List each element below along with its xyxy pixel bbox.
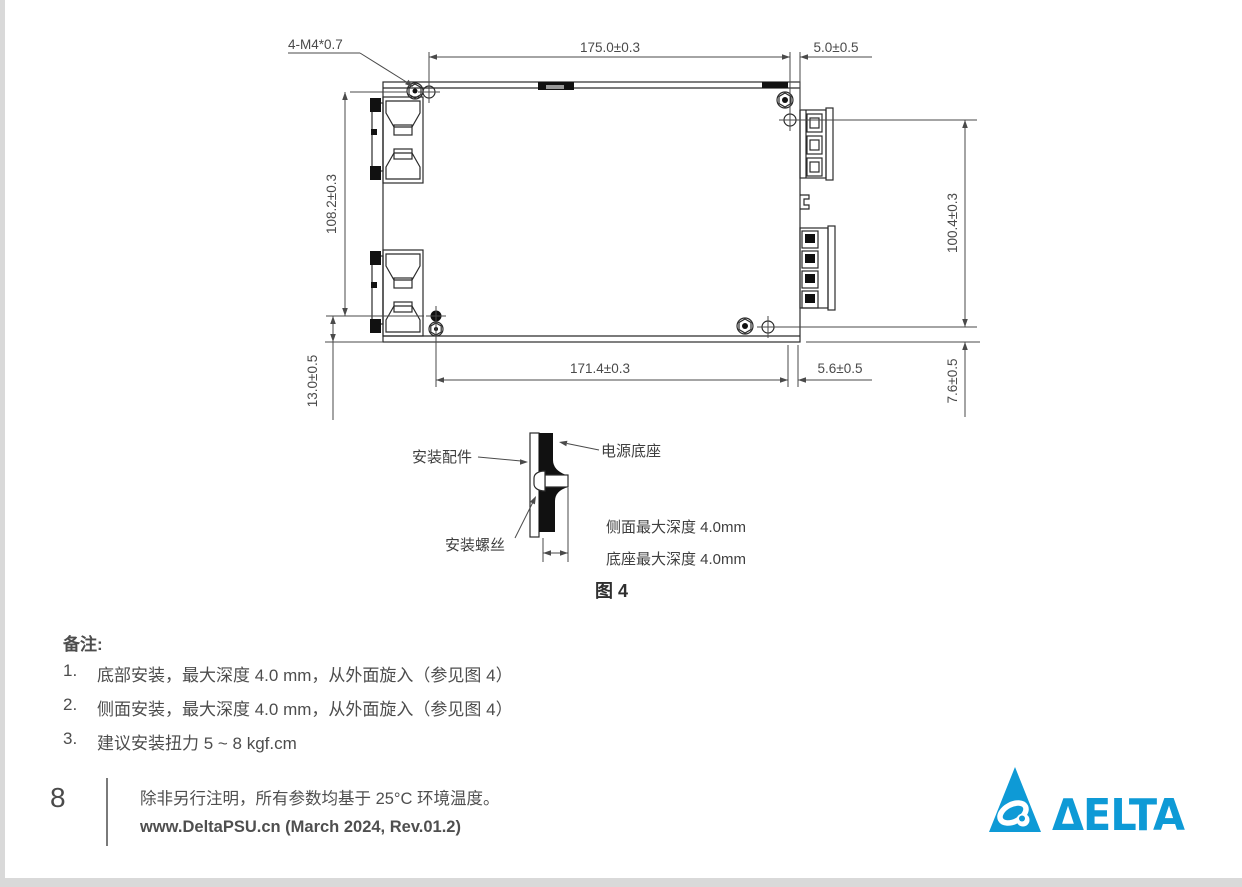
top-right-tab: [762, 82, 788, 88]
mounting-hole-icons: [418, 81, 801, 338]
note-text: 建议安装扭力 5 ~ 8 kgf.cm: [97, 729, 297, 754]
output-terminal-block: [800, 226, 835, 310]
note-item: 1. 底部安装，最大深度 4.0 mm，从外面旋入（参见图 4）: [63, 661, 513, 686]
left-bracket-bottom: [370, 250, 423, 336]
mounting-detail-figure: 安装配件 电源底座 安装螺丝 侧面最大深度 4.0mm 底座最大深度 4.0mm…: [395, 420, 775, 615]
dim-top-width: 175.0±0.3: [580, 40, 640, 55]
input-terminal-block: [800, 108, 833, 180]
psu-body-outline: [383, 82, 800, 342]
label-mounting-screw: 安装螺丝: [445, 537, 505, 554]
note-text: 侧面安装，最大深度 4.0 mm，从外面旋入（参见图 4）: [97, 695, 513, 720]
page-edge-bottom: [0, 878, 1242, 887]
delta-logo-text: ΔELTA: [1052, 790, 1185, 841]
dim-bottom-right-offset: 5.6±0.5: [818, 361, 863, 376]
dim-right-bottom-offset: 7.6±0.5: [945, 359, 960, 404]
note-number: 1.: [63, 661, 97, 686]
footer-divider: [106, 778, 108, 846]
note-item: 2. 侧面安装，最大深度 4.0 mm，从外面旋入（参见图 4）: [63, 695, 513, 720]
footer-text-block: 除非另行注明，所有参数均基于 25°C 环境温度。 www.DeltaPSU.c…: [140, 785, 500, 841]
label-psu-base: 电源底座: [601, 443, 661, 460]
label-base-max-depth: 底座最大深度 4.0mm: [606, 551, 746, 568]
note-text: 底部安装，最大深度 4.0 mm，从外面旋入（参见图 4）: [97, 661, 513, 686]
psu-base-upper-shape: [539, 433, 566, 475]
label-mounting-accessory: 安装配件: [412, 449, 472, 466]
note-item: 3. 建议安装扭力 5 ~ 8 kgf.cm: [63, 729, 513, 754]
thread-callout-label: 4-M4*0.7: [288, 37, 343, 52]
left-bracket-top: [370, 97, 423, 183]
page-number: 8: [50, 782, 66, 814]
figure-caption: 图 4: [595, 581, 628, 601]
side-clip: [800, 195, 809, 209]
datasheet-page: 4-M4*0.7 175.0±0.3 5.0±0.5 108.2±0.3 13.…: [0, 0, 1242, 887]
page-edge-left: [0, 0, 5, 887]
notes-section: 备注: 1. 底部安装，最大深度 4.0 mm，从外面旋入（参见图 4） 2. …: [63, 630, 513, 763]
footer-source: www.DeltaPSU.cn (March 2024, Rev.01.2): [140, 813, 500, 841]
dim-right-height: 100.4±0.3: [945, 193, 960, 253]
dim-left-height: 108.2±0.3: [324, 174, 339, 234]
note-number: 2.: [63, 695, 97, 720]
psu-base-lower-shape: [539, 487, 568, 532]
hex-screw-icons: [407, 83, 793, 336]
note-number: 3.: [63, 729, 97, 754]
screw-head-shape: [534, 471, 545, 491]
dim-bottom-width: 171.4±0.3: [570, 361, 630, 376]
label-side-max-depth: 侧面最大深度 4.0mm: [606, 519, 746, 536]
mechanical-drawing-bottom-view: 4-M4*0.7 175.0±0.3 5.0±0.5 108.2±0.3 13.…: [280, 25, 980, 435]
delta-logo-icon: ΔELTA: [978, 764, 1190, 842]
screw-shaft-shape: [545, 475, 568, 487]
delta-logo: ΔELTA: [978, 764, 1190, 847]
dim-top-right-offset: 5.0±0.5: [814, 40, 859, 55]
notes-heading: 备注:: [63, 630, 513, 655]
footer-condition-note: 除非另行注明，所有参数均基于 25°C 环境温度。: [140, 785, 500, 813]
dim-left-bottom-offset: 13.0±0.5: [305, 355, 320, 407]
